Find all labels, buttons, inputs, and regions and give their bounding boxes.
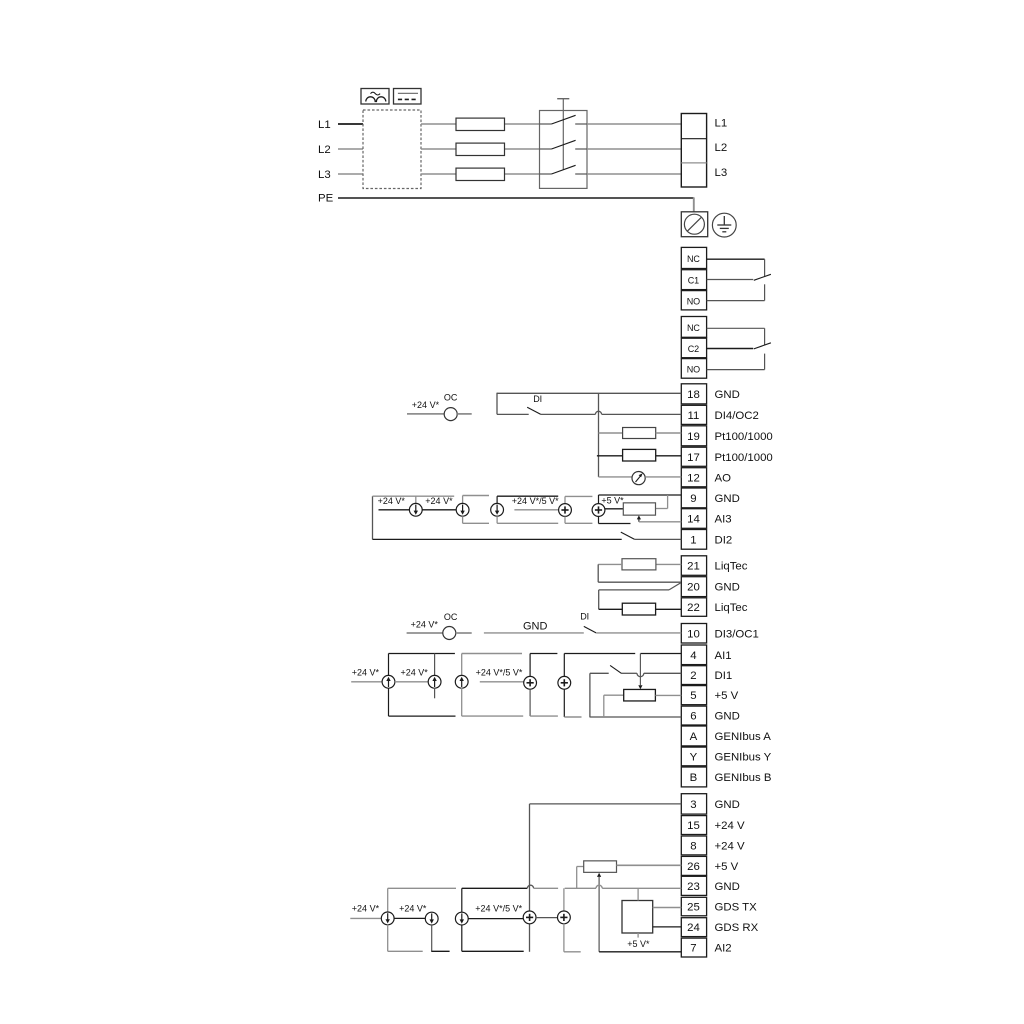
svg-text:AI1: AI1 bbox=[715, 650, 732, 662]
svg-text:AO: AO bbox=[715, 472, 732, 484]
svg-text:DI1: DI1 bbox=[715, 670, 733, 682]
svg-text:+24 V*/5 V*: +24 V*/5 V* bbox=[512, 496, 559, 506]
svg-text:+5 V: +5 V bbox=[715, 690, 739, 702]
svg-text:+24 V*/5 V*: +24 V*/5 V* bbox=[476, 667, 523, 677]
svg-text:+24 V*: +24 V* bbox=[412, 400, 440, 410]
svg-text:DI: DI bbox=[533, 394, 542, 404]
svg-text:NO: NO bbox=[687, 364, 701, 374]
svg-text:8: 8 bbox=[690, 840, 696, 852]
svg-text:+24 V*/5 V*: +24 V*/5 V* bbox=[475, 904, 522, 914]
svg-text:18: 18 bbox=[687, 389, 700, 401]
svg-text:L3: L3 bbox=[715, 167, 728, 179]
svg-text:LiqTec: LiqTec bbox=[715, 602, 748, 614]
svg-text:17: 17 bbox=[687, 452, 700, 464]
svg-text:NO: NO bbox=[687, 296, 701, 306]
svg-text:7: 7 bbox=[690, 943, 696, 955]
svg-text:AI3: AI3 bbox=[715, 514, 732, 526]
svg-text:4: 4 bbox=[690, 650, 696, 662]
svg-text:OC: OC bbox=[444, 612, 458, 622]
svg-text:3: 3 bbox=[690, 799, 696, 811]
svg-text:GDS RX: GDS RX bbox=[715, 922, 759, 934]
svg-text:GND: GND bbox=[715, 881, 740, 893]
svg-text:DI4/OC2: DI4/OC2 bbox=[715, 410, 759, 422]
svg-text:14: 14 bbox=[687, 514, 700, 526]
svg-text:+24 V*: +24 V* bbox=[352, 667, 380, 677]
svg-text:23: 23 bbox=[687, 881, 700, 893]
svg-text:Y: Y bbox=[690, 751, 698, 763]
svg-text:L1: L1 bbox=[318, 119, 331, 131]
svg-text:15: 15 bbox=[687, 820, 700, 832]
svg-text:GND: GND bbox=[715, 493, 740, 505]
svg-text:20: 20 bbox=[687, 582, 700, 594]
svg-text:DI3/OC1: DI3/OC1 bbox=[715, 628, 759, 640]
svg-text:GENIbus B: GENIbus B bbox=[715, 772, 772, 784]
svg-text:12: 12 bbox=[687, 472, 700, 484]
svg-text:GND: GND bbox=[715, 582, 740, 594]
svg-text:22: 22 bbox=[687, 602, 700, 614]
svg-text:B: B bbox=[690, 772, 698, 784]
svg-text:Pt100/1000: Pt100/1000 bbox=[715, 431, 773, 443]
svg-text:2: 2 bbox=[690, 670, 696, 682]
svg-text:1: 1 bbox=[690, 534, 696, 546]
svg-text:+24 V*: +24 V* bbox=[401, 667, 429, 677]
svg-text:OC: OC bbox=[444, 393, 458, 403]
svg-text:+5 V*: +5 V* bbox=[601, 495, 624, 505]
svg-text:+24 V: +24 V bbox=[715, 820, 745, 832]
svg-text:A: A bbox=[690, 731, 698, 743]
svg-text:L1: L1 bbox=[715, 118, 728, 130]
svg-text:19: 19 bbox=[687, 431, 700, 443]
svg-text:+24 V*: +24 V* bbox=[425, 496, 453, 506]
svg-text:LiqTec: LiqTec bbox=[715, 561, 748, 573]
svg-text:NC: NC bbox=[687, 254, 700, 264]
svg-text:10: 10 bbox=[687, 628, 700, 640]
svg-text:+24 V*: +24 V* bbox=[352, 904, 380, 914]
svg-text:L2: L2 bbox=[318, 144, 331, 156]
svg-text:GND: GND bbox=[715, 389, 740, 401]
svg-text:L2: L2 bbox=[715, 142, 728, 154]
svg-text:5: 5 bbox=[690, 690, 696, 702]
svg-text:DI: DI bbox=[580, 612, 589, 622]
svg-text:L3: L3 bbox=[318, 169, 331, 181]
svg-text:NC: NC bbox=[687, 323, 700, 333]
svg-text:+24 V*: +24 V* bbox=[399, 904, 427, 914]
svg-text:+5 V*: +5 V* bbox=[627, 939, 650, 949]
svg-text:26: 26 bbox=[687, 861, 700, 873]
svg-text:25: 25 bbox=[687, 902, 700, 914]
svg-text:GDS TX: GDS TX bbox=[715, 902, 758, 914]
svg-text:C1: C1 bbox=[688, 276, 700, 286]
svg-text:GND: GND bbox=[523, 621, 548, 633]
svg-text:PE: PE bbox=[318, 193, 334, 205]
svg-text:+5 V: +5 V bbox=[715, 861, 739, 873]
svg-text:GND: GND bbox=[715, 799, 740, 811]
svg-text:GENIbus Y: GENIbus Y bbox=[715, 751, 772, 763]
svg-text:11: 11 bbox=[688, 410, 700, 422]
svg-text:DI2: DI2 bbox=[715, 534, 733, 546]
svg-text:GND: GND bbox=[715, 711, 740, 723]
svg-text:C2: C2 bbox=[688, 344, 700, 354]
svg-text:9: 9 bbox=[690, 493, 696, 505]
svg-text:21: 21 bbox=[687, 561, 700, 573]
svg-text:24: 24 bbox=[687, 922, 700, 934]
svg-text:+24 V: +24 V bbox=[715, 840, 745, 852]
svg-text:Pt100/1000: Pt100/1000 bbox=[715, 452, 773, 464]
svg-text:+24 V*: +24 V* bbox=[378, 496, 406, 506]
svg-text:GENIbus A: GENIbus A bbox=[715, 731, 772, 743]
svg-text:6: 6 bbox=[690, 711, 696, 723]
svg-text:AI2: AI2 bbox=[715, 943, 732, 955]
svg-text:+24 V*: +24 V* bbox=[411, 620, 439, 630]
